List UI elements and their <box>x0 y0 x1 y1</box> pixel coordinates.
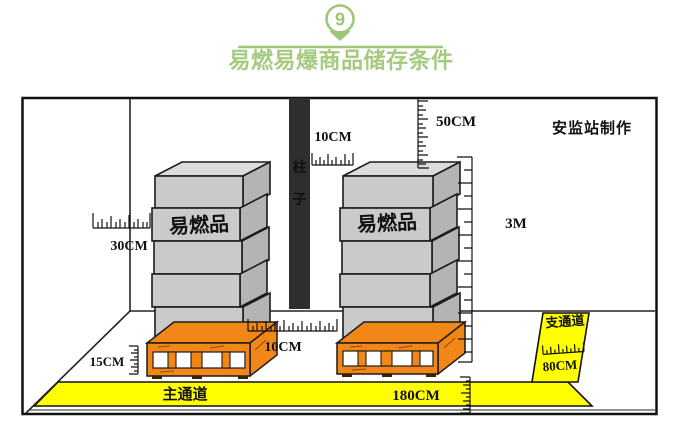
stack-height-label: 3M <box>505 216 527 232</box>
wall-clearance-label: 30CM <box>110 239 147 254</box>
left-stack: 易燃品 <box>152 162 270 343</box>
branch-aisle-width-label: 80CM <box>542 357 578 374</box>
pallet-block <box>358 351 366 366</box>
storage-diagram: 9 易燃易爆商品储存条件 柱 子 <box>0 0 680 428</box>
box-front-face <box>154 241 242 274</box>
ceiling-clearance-label: 50CM <box>436 114 476 130</box>
poster: 9 易燃易爆商品储存条件 柱 子 <box>0 0 680 428</box>
box-front-face <box>342 241 432 274</box>
pillar: 柱 子 <box>289 98 310 309</box>
page-title: 易燃易爆商品储存条件 <box>228 48 453 73</box>
pallet-block <box>412 351 420 366</box>
credit-label: 安监站制作 <box>552 119 632 137</box>
badge-number: 9 <box>335 10 345 30</box>
right-stack: 易燃品 <box>340 162 460 343</box>
diagram: 柱 子 易燃品 <box>23 98 657 414</box>
badge-pin-tip <box>329 31 351 41</box>
box-front-face <box>340 274 430 307</box>
main-aisle-width-label: 180CM <box>392 388 440 404</box>
pallet-block <box>168 352 176 368</box>
right-pallet <box>337 322 465 376</box>
pallet-height-label: 15CM <box>90 354 125 369</box>
box-front-face <box>155 176 243 208</box>
column-clearance-label: 10CM <box>314 130 351 145</box>
flammable-goods-label: 易燃品 <box>168 211 229 238</box>
branch-aisle-label: 支通道 <box>544 313 585 331</box>
box-front-face <box>152 274 240 307</box>
pillar-label-char-2: 子 <box>293 191 307 207</box>
pallet-block <box>191 352 202 368</box>
main-aisle: 主通道 180CM <box>34 382 592 406</box>
pillar-label-char-1: 柱 <box>293 159 307 175</box>
main-aisle-label: 主通道 <box>162 385 207 403</box>
box-front-face <box>343 176 433 208</box>
main-aisle-strip <box>34 382 592 406</box>
flammable-goods-label: 易燃品 <box>356 209 417 236</box>
number-badge-icon: 9 <box>327 6 354 42</box>
header: 9 易燃易爆商品储存条件 <box>228 6 453 74</box>
pallet-block <box>222 352 230 368</box>
stack-gap-label: 10CM <box>264 340 301 355</box>
pallet-block <box>381 351 392 366</box>
